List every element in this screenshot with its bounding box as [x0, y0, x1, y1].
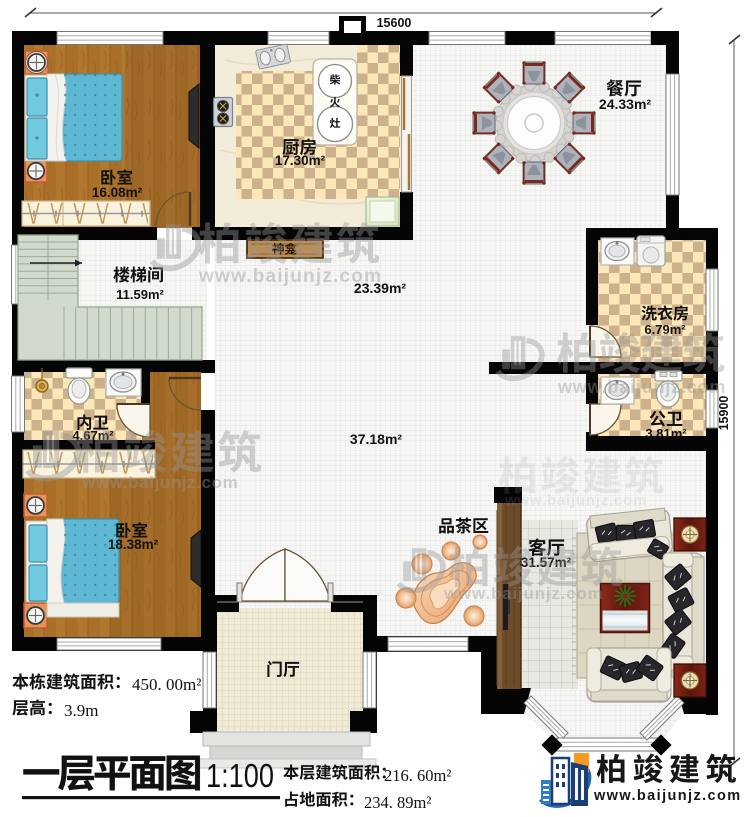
svg-text:1:100: 1:100 — [206, 757, 274, 794]
svg-text:www.baijunjz.com: www.baijunjz.com — [557, 377, 726, 397]
svg-text:15900: 15900 — [717, 396, 731, 431]
svg-text:www.baijunjz.com: www.baijunjz.com — [443, 584, 604, 603]
svg-text:www.baijunjz.com: www.baijunjz.com — [504, 492, 647, 509]
svg-text:3.9m: 3.9m — [64, 701, 98, 720]
svg-text:www.baijunjz.com: www.baijunjz.com — [81, 473, 238, 492]
svg-text:37.18m²: 37.18m² — [350, 431, 402, 447]
svg-text:234. 89m²: 234. 89m² — [364, 793, 431, 812]
svg-text:18.38m²: 18.38m² — [108, 537, 159, 552]
svg-text:216. 60m²: 216. 60m² — [384, 766, 451, 785]
svg-text:15600: 15600 — [377, 16, 412, 30]
svg-text:www.baijunjz.com: www.baijunjz.com — [593, 788, 742, 804]
svg-text:3.81m²: 3.81m² — [645, 426, 687, 441]
svg-text:www.baijunjz.com: www.baijunjz.com — [198, 266, 382, 287]
svg-text:24.33m²: 24.33m² — [599, 96, 651, 112]
svg-text:16.08m²: 16.08m² — [92, 185, 143, 200]
svg-text:17.30m²: 17.30m² — [275, 153, 326, 168]
svg-text:11.59m²: 11.59m² — [116, 287, 164, 302]
svg-text:450. 00m²: 450. 00m² — [132, 675, 201, 694]
